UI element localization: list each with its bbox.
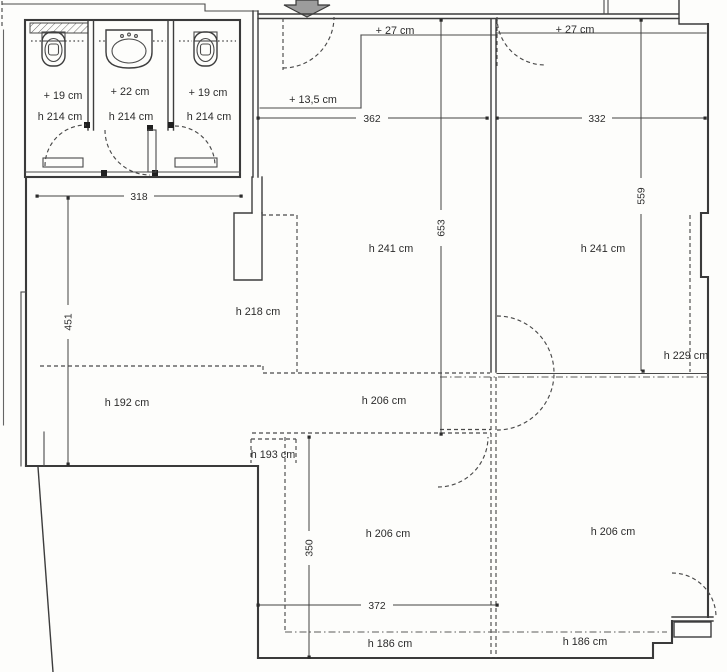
door-swing-arc [283,17,334,68]
label-step-upper-right: + 27 cm [556,24,595,36]
door-swing-arc [105,130,150,175]
label-stall-left-offset: + 19 cm [44,90,83,102]
door-swing-arc [672,573,716,617]
outer-walls [21,0,708,672]
label-step-upper-left: + 27 cm [376,25,415,37]
door-leaf [175,158,217,167]
toilet-icon [194,32,217,66]
label-zone-left: h 218 cm [236,306,280,318]
boundary-lines [2,1,258,425]
dim-bath-width: 318 [130,192,147,203]
dim-right-height: 559 [637,187,648,204]
dimension-labels: 318 362 332 451 653 559 350 372 [62,112,648,612]
door-leaf [148,130,156,172]
door-swing-arc [45,125,86,166]
label-zone-lower-left: h 192 cm [105,397,149,409]
door-swing-arc [175,126,215,166]
zone-boundaries [40,215,690,632]
label-zone-right-edge: h 229 cm [664,350,708,362]
dim-upper-left-width: 362 [363,114,380,125]
floor-plan: 318 362 332 451 653 559 350 372 + 19 cm … [0,0,727,672]
label-stall-right-offset: + 19 cm [189,87,228,99]
vestibule-walls [234,11,262,280]
dim-center-height: 653 [437,219,448,236]
door-leaf [43,158,83,167]
label-room-lower-mid: h 206 cm [366,528,410,540]
label-stall-left-height: h 214 cm [38,111,82,123]
door-swing-arc [438,437,488,487]
interior-walls [438,19,708,658]
sink-icon [106,30,152,68]
dim-upper-right-width: 332 [588,114,605,125]
label-room-lower-right: h 206 cm [591,526,635,538]
bottom-right-door [672,573,716,637]
door-hinge [168,122,174,128]
label-room-upper-mid: h 241 cm [369,243,413,255]
label-zone-niche: h 193 cm [251,449,295,461]
door-swing-arc [497,17,545,65]
label-room-upper-right: h 241 cm [581,243,625,255]
dim-left-height: 451 [64,313,75,330]
dim-lower-width: 372 [368,601,385,612]
label-step-entry: + 13,5 cm [289,94,337,106]
floor-plan-canvas: 318 362 332 451 653 559 350 372 + 19 cm … [0,0,727,672]
label-stall-mid-height: h 214 cm [109,111,153,123]
door-hinge [152,170,158,176]
label-stall-mid-offset: + 22 cm [111,86,150,98]
label-strip-bottom-left: h 186 cm [368,638,412,650]
door-hinge [101,170,107,176]
toilet-icon [42,32,65,66]
label-zone-center: h 206 cm [362,395,406,407]
label-stall-right-height: h 214 cm [187,111,231,123]
dim-lower-height: 350 [305,539,316,556]
label-strip-bottom-right: h 186 cm [563,636,607,648]
